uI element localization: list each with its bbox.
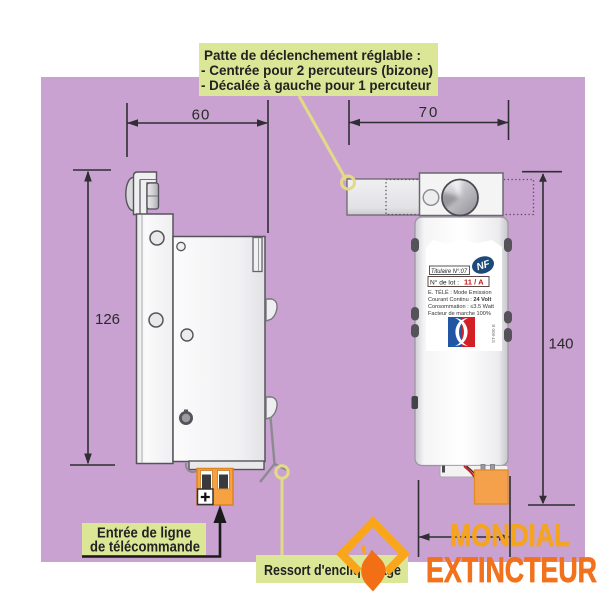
svg-text:Courant Continu : 24 Volt: Courant Continu : 24 Volt (428, 297, 491, 303)
svg-text:EXTINCTEUR: EXTINCTEUR (426, 550, 597, 590)
svg-text:140: 140 (549, 336, 574, 353)
svg-text:70: 70 (419, 104, 440, 121)
svg-text:60: 60 (192, 107, 211, 124)
svg-text:Titulaire N°:07: Titulaire N°:07 (431, 268, 468, 275)
svg-text:ST-800 B: ST-800 B (491, 324, 496, 343)
svg-text:- Centrée pour 2 percuteurs (b: - Centrée pour 2 percuteurs (bizone) (201, 62, 433, 78)
svg-text:126: 126 (95, 311, 120, 328)
svg-text:E. TÉLÉ : Mode Emission: E. TÉLÉ : Mode Emission (428, 289, 492, 296)
svg-text:Patte de déclenchement réglabl: Patte de déclenchement réglable : (204, 47, 421, 63)
svg-text:11 / A: 11 / A (464, 278, 484, 287)
svg-text:- Décalée à gauche pour 1 perc: - Décalée à gauche pour 1 percuteur (201, 77, 432, 93)
svg-text:Facteur de marche 100%: Facteur de marche 100% (428, 311, 491, 317)
svg-text:de télécommande: de télécommande (90, 540, 200, 556)
svg-text:MONDIAL: MONDIAL (450, 517, 570, 553)
svg-text:N° de lot :: N° de lot : (430, 278, 459, 286)
svg-text:Consommation : ≤3.5 Watt: Consommation : ≤3.5 Watt (428, 304, 494, 310)
